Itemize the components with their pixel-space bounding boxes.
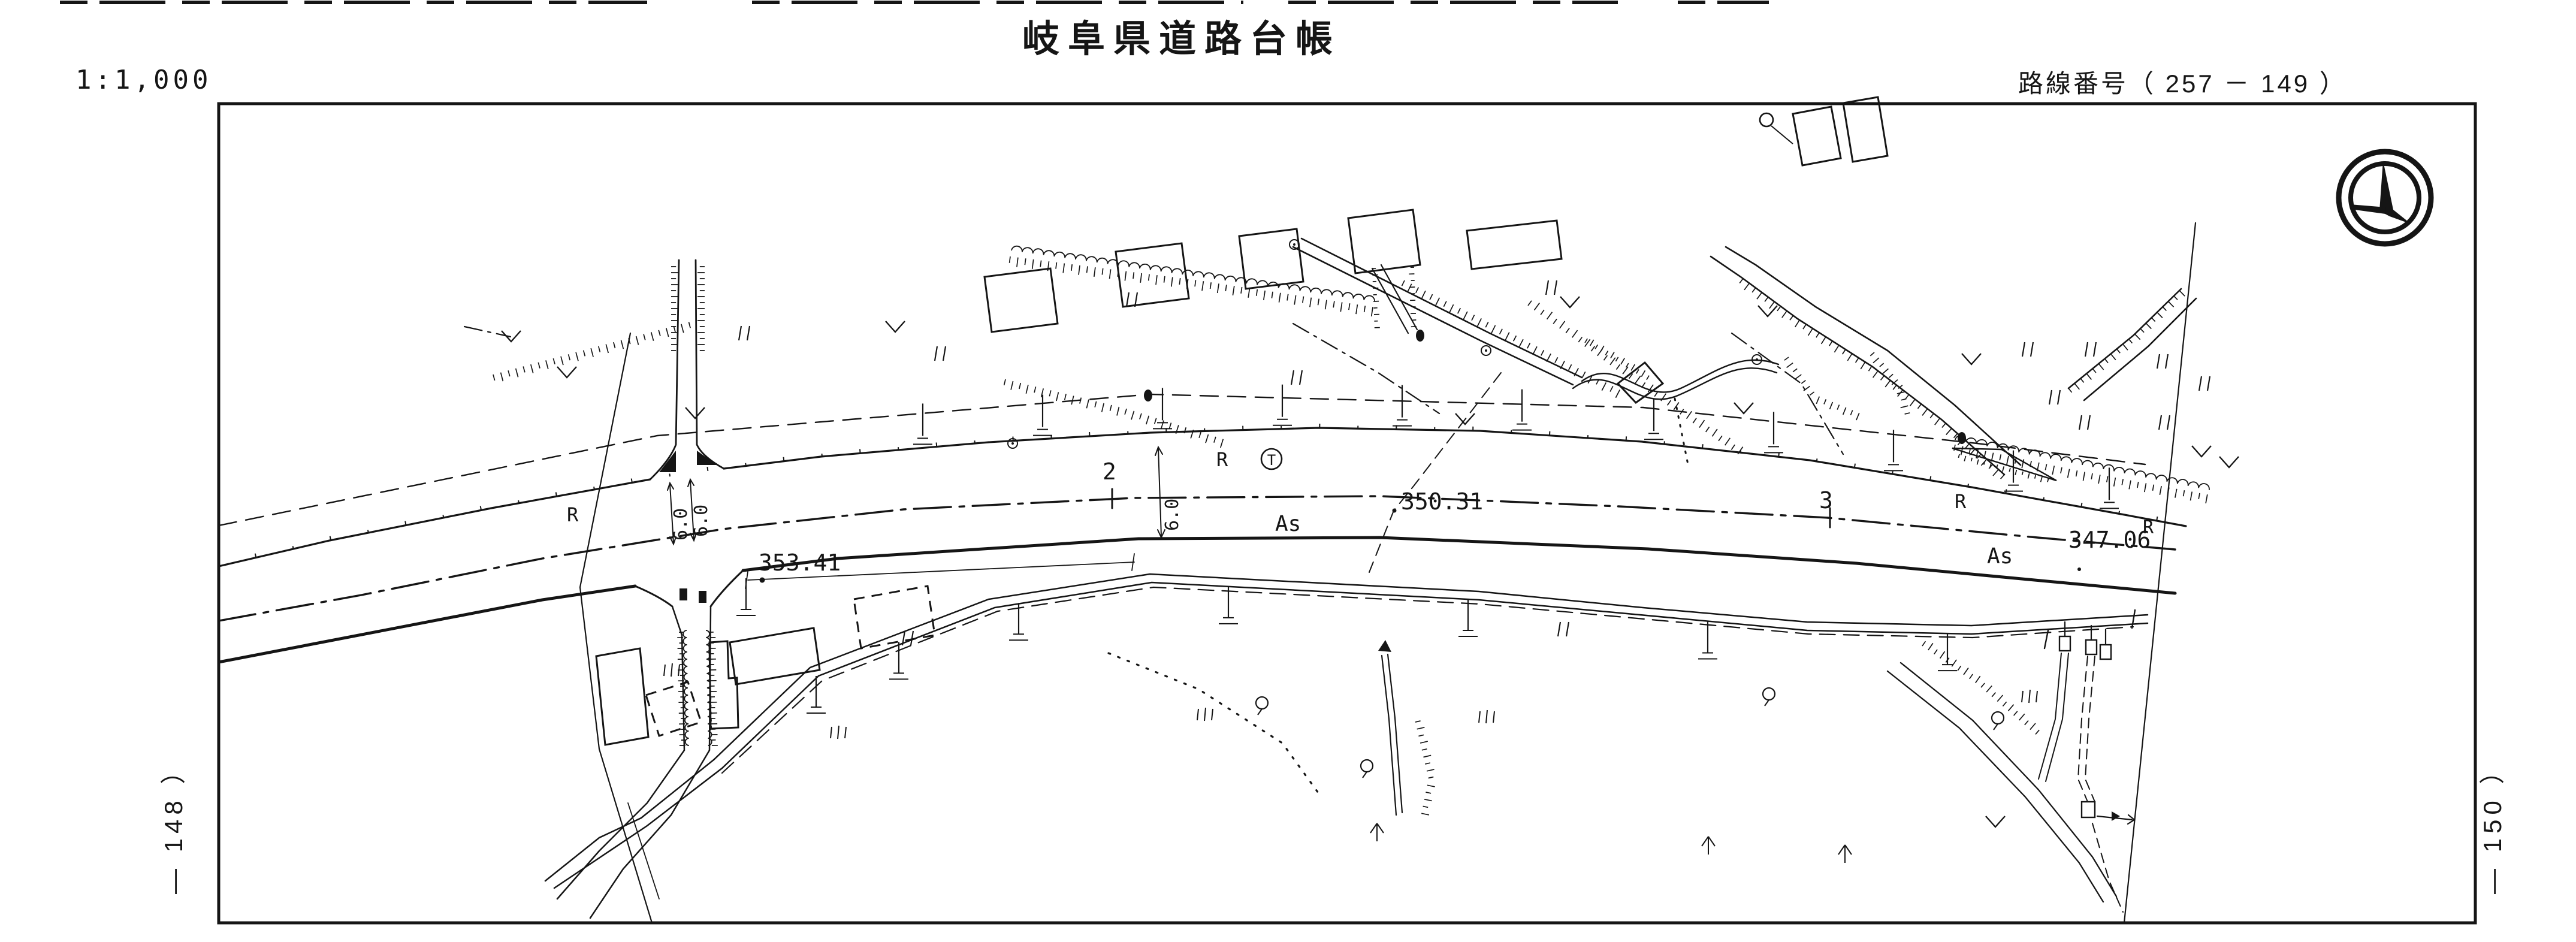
road-centerline: [219, 496, 2175, 621]
spot-elevation-label: 347.06: [2068, 527, 2151, 553]
adjacent-sheet-labels: — 148 ） — 150 ）: [159, 754, 2506, 894]
footpath-dotted: [1675, 398, 1689, 467]
building-outline: [985, 268, 1058, 332]
scale-label: 1:1,000: [76, 65, 212, 95]
pavement-label: As: [1275, 512, 1301, 536]
station-number: 3: [1819, 487, 1833, 514]
terrain-hatching: [218, 240, 2239, 863]
adjacent-sheet-label-left: — 148 ）: [159, 754, 188, 894]
culvert-box: [2059, 636, 2070, 651]
building-outline: [1348, 210, 1420, 273]
building-outline: [1793, 107, 1841, 165]
curve-point-label: R: [1955, 490, 1967, 513]
parcel-dashdot: [1732, 333, 1843, 454]
building-planned-dashed: [854, 586, 935, 648]
junction-flare: [696, 260, 724, 469]
spot-elevation-dot: [2077, 567, 2081, 571]
spot-elevation-suffix: R: [2143, 517, 2154, 538]
channel-side-line: [2039, 653, 2068, 781]
path-between-buildings: [1372, 265, 1417, 333]
street-edge: [1301, 238, 1582, 378]
footpath-wavy: [1582, 360, 1778, 393]
pavement-label: As: [1987, 544, 2013, 569]
channel-dashed: [2092, 823, 2123, 912]
climbing-road-spur: [2068, 289, 2181, 388]
stream-line: [1382, 656, 1396, 815]
curve-point-label: R: [567, 503, 579, 526]
fence-line: [628, 803, 659, 899]
map-canvas: 1:1,000 岐阜県道路台帳 路線番号（ 257 － 149 ） — 148 …: [0, 0, 2576, 942]
main-road-bottom-edge: [219, 586, 635, 662]
station-number: 2: [1103, 458, 1116, 485]
parcel-dashdot: [464, 327, 511, 337]
junction-flare: [711, 570, 743, 606]
flare-wedge: [659, 451, 676, 472]
tank-leader: [1771, 126, 1793, 144]
culvert-box: [2082, 802, 2095, 817]
main-road-top-edge: [219, 479, 650, 566]
footpath-dotted: [1109, 653, 1321, 797]
pole-circle-letter: T: [1267, 452, 1276, 469]
branch-track-edge: [1888, 671, 2103, 902]
road-width-label: 6.0: [671, 508, 691, 541]
match-line-right: [2124, 223, 2196, 923]
gate-post: [699, 591, 706, 603]
map-linework: [219, 223, 2196, 923]
secondary-road-edge: [545, 574, 2148, 881]
building-l-shape: [709, 641, 738, 729]
building-outline: [1116, 243, 1189, 307]
tank-circle: [1760, 113, 1773, 126]
adjacent-sheet-label-right: — 150 ）: [2478, 754, 2506, 894]
building-outline: [730, 628, 820, 684]
gate-post: [680, 588, 687, 600]
road-width-label: 6.0: [691, 505, 712, 537]
route-number-label: 路線番号（ 257 － 149 ）: [2018, 70, 2347, 98]
junction-flare: [650, 260, 679, 479]
sheet-title: 岐阜県道路台帳: [1022, 19, 1341, 60]
building-planned-dashed: [646, 682, 701, 736]
channel-dashed: [2085, 656, 2095, 802]
spot-elevation-label: 353.41: [759, 549, 841, 576]
secondary-road-edge: [554, 582, 2148, 888]
stream-arrowhead: [1378, 640, 1391, 652]
culvert-box: [2100, 645, 2111, 659]
building-outline: [596, 648, 648, 745]
building-diamond: [1618, 363, 1663, 403]
traffic-island: [1952, 448, 2056, 481]
sheet-header: 1:1,000 岐阜県道路台帳 路線番号（ 257 － 149 ）: [76, 19, 2347, 98]
road-ledger-sheet: 1:1,000 岐阜県道路台帳 路線番号（ 257 － 149 ） — 148 …: [0, 0, 2576, 942]
building-outline: [1467, 221, 1562, 269]
main-road-bottom-edge: [743, 538, 2175, 593]
north-arrow-icon: [2339, 152, 2431, 244]
buildings: [596, 97, 1888, 745]
channel-arrow-fin: [2112, 811, 2120, 821]
road-width-label: 6.0: [1162, 499, 1183, 531]
curve-point-label: R: [1216, 448, 1228, 471]
map-labels: 353.41 350.31 347.06 R As As R R R 2 3 6…: [567, 448, 2154, 576]
spot-elevation-dot: [1393, 509, 1397, 513]
branch-lane-edge: [557, 606, 684, 899]
spot-elevation-dot: [760, 578, 765, 583]
street-edge: [1293, 247, 1573, 385]
junction-flare: [635, 586, 672, 606]
culvert-box: [2086, 640, 2097, 654]
spot-elevation-label: 350.31: [1401, 488, 1483, 515]
building-outline: [1843, 97, 1888, 162]
